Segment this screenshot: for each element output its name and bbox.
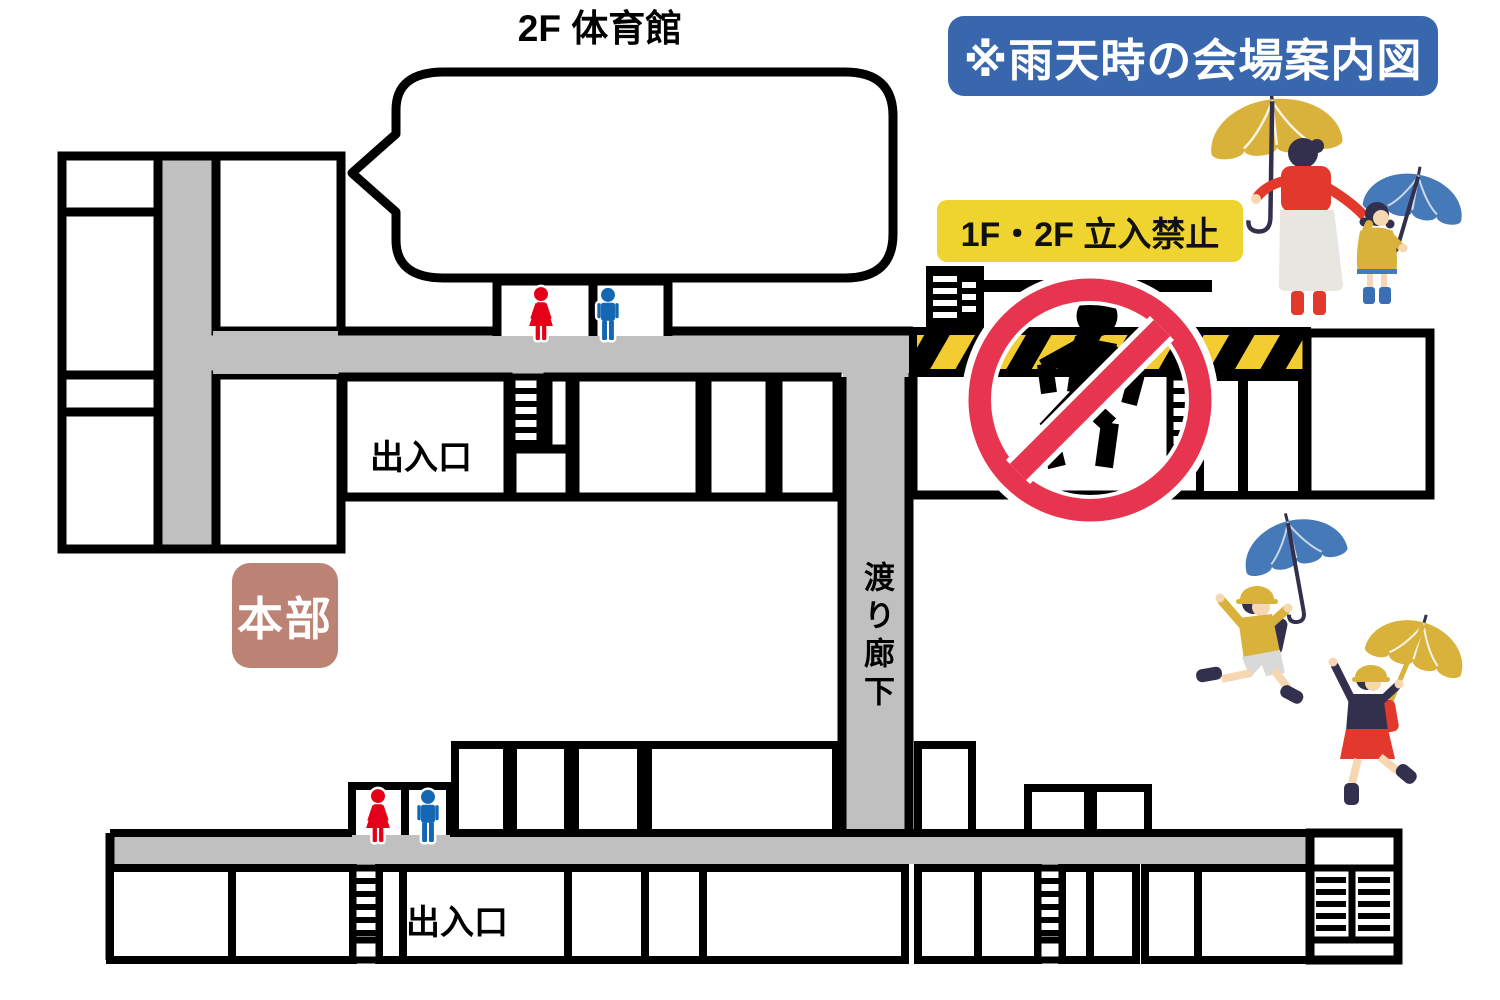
room xyxy=(648,745,836,833)
room xyxy=(216,375,341,549)
top-restrooms xyxy=(497,281,668,340)
room xyxy=(1090,868,1136,960)
girl-figure xyxy=(1329,658,1420,806)
children-umbrella-illustration xyxy=(1195,501,1474,805)
room xyxy=(1198,868,1310,960)
boy-figure xyxy=(1195,586,1305,706)
stairs-icon xyxy=(1038,868,1062,960)
rainy-day-venue-map-page: 2F 体育館 ※雨天時の会場案内図 1F・2F 立入禁止 本部 出入口 出入口 … xyxy=(0,0,1500,1000)
stairs-icon xyxy=(512,377,540,449)
room xyxy=(1244,377,1302,495)
room xyxy=(568,868,645,960)
bottom-building xyxy=(110,745,1398,960)
map-title-badge: ※雨天時の会場案内図 xyxy=(948,16,1438,96)
entrance-label-bottom: 出入口 xyxy=(406,906,508,940)
no-entry-floors-badge: 1F・2F 立入禁止 xyxy=(937,200,1243,262)
room xyxy=(62,212,158,375)
stairs-icon xyxy=(1310,833,1398,960)
room xyxy=(575,377,700,497)
entrance-label-top: 出入口 xyxy=(370,441,472,475)
room xyxy=(1062,868,1090,960)
room xyxy=(703,868,905,960)
room xyxy=(1028,788,1088,833)
entrance-room-top xyxy=(343,377,508,497)
room xyxy=(455,745,507,833)
venue-floor-plan xyxy=(0,0,1500,1000)
stairs-icon xyxy=(353,868,379,960)
gym-floor-label: 2F 体育館 xyxy=(480,10,720,47)
room xyxy=(918,868,978,960)
male-restroom-icon xyxy=(597,288,618,340)
corridor xyxy=(110,833,1310,864)
room xyxy=(778,377,837,497)
corridor xyxy=(158,156,216,549)
room xyxy=(1093,788,1148,833)
room xyxy=(575,745,641,833)
room xyxy=(1307,333,1430,495)
room xyxy=(645,868,703,960)
room xyxy=(232,868,353,960)
room xyxy=(110,868,232,960)
room xyxy=(62,156,158,212)
connecting-corridor-label: 渡り廊下 xyxy=(843,552,910,722)
mother-child-umbrella-illustration xyxy=(1205,82,1469,315)
gym-speech-bubble xyxy=(352,72,893,278)
room xyxy=(513,745,568,833)
room xyxy=(512,449,570,497)
room xyxy=(548,377,570,449)
bottom-restrooms xyxy=(352,786,450,842)
room xyxy=(62,375,158,412)
headquarters-badge: 本部 xyxy=(232,563,338,668)
top-building-rooms xyxy=(343,377,837,497)
room xyxy=(918,745,972,833)
room xyxy=(978,868,1038,960)
room xyxy=(62,412,158,549)
room xyxy=(707,377,770,497)
room xyxy=(1145,868,1198,960)
room xyxy=(216,156,341,331)
male-restroom-icon xyxy=(417,790,438,842)
